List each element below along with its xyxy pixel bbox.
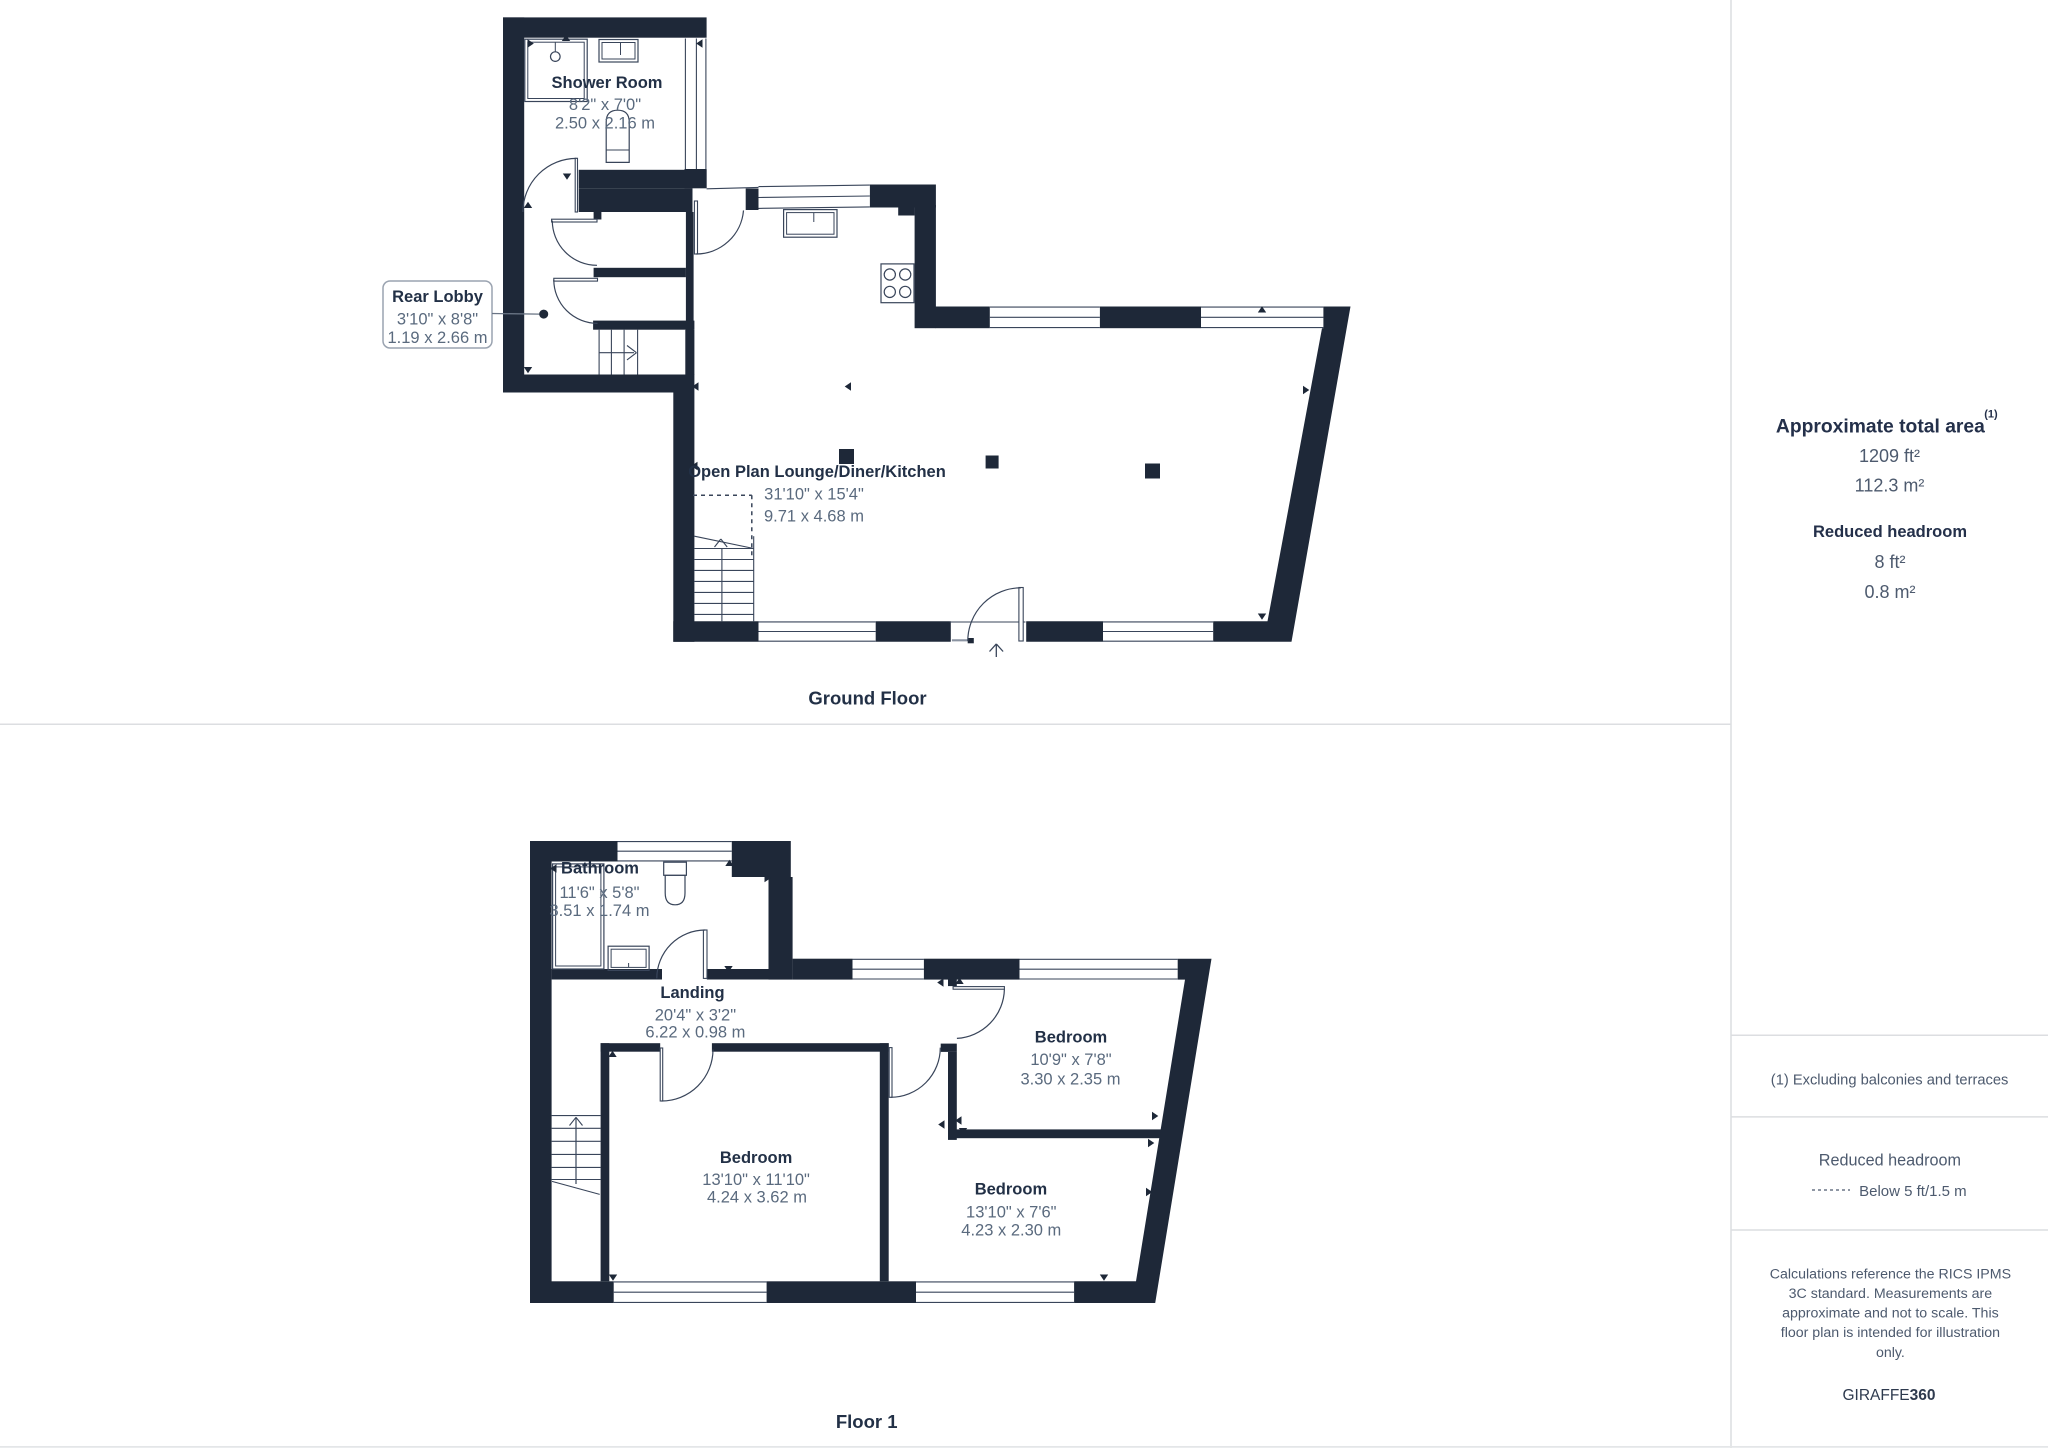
svg-text:GIRAFFE360: GIRAFFE360 [1842, 1387, 1935, 1404]
svg-text:Floor 1: Floor 1 [836, 1411, 898, 1432]
svg-text:Below 5 ft/1.5 m: Below 5 ft/1.5 m [1859, 1183, 1967, 1200]
svg-text:approximate and not to scale.: approximate and not to scale. This [1782, 1306, 1999, 1322]
svg-text:13'10" x 7'6": 13'10" x 7'6" [966, 1204, 1057, 1222]
svg-text:Bedroom: Bedroom [975, 1181, 1047, 1199]
svg-text:0.8 m²: 0.8 m² [1864, 582, 1915, 602]
svg-text:3'10" x 8'8": 3'10" x 8'8" [397, 311, 478, 329]
svg-text:9.71 x 4.68 m: 9.71 x 4.68 m [764, 508, 864, 526]
svg-text:Approximate total area: Approximate total area [1776, 416, 1985, 437]
svg-text:Bedroom: Bedroom [720, 1149, 792, 1167]
svg-text:Shower Room: Shower Room [552, 74, 663, 92]
svg-text:10'9" x 7'8": 10'9" x 7'8" [1030, 1051, 1111, 1069]
svg-text:Calculations reference the RIC: Calculations reference the RICS IPMS [1770, 1266, 2011, 1282]
svg-text:(1): (1) [1984, 409, 1998, 421]
svg-text:112.3 m²: 112.3 m² [1855, 476, 1925, 496]
svg-text:Rear Lobby: Rear Lobby [392, 288, 484, 306]
svg-text:Landing: Landing [660, 984, 724, 1002]
svg-text:20'4" x 3'2": 20'4" x 3'2" [655, 1007, 736, 1025]
svg-text:Ground Floor: Ground Floor [808, 688, 926, 709]
svg-text:31'10" x 15'4": 31'10" x 15'4" [764, 486, 864, 504]
svg-text:1.19 x 2.66 m: 1.19 x 2.66 m [388, 329, 488, 347]
svg-text:4.23 x 2.30 m: 4.23 x 2.30 m [961, 1222, 1061, 1240]
svg-text:13'10" x 11'10": 13'10" x 11'10" [702, 1171, 810, 1189]
svg-text:4.24 x 3.62 m: 4.24 x 3.62 m [707, 1189, 807, 1207]
svg-text:Open Plan Lounge/Diner/Kitchen: Open Plan Lounge/Diner/Kitchen [688, 463, 946, 481]
svg-text:Bedroom: Bedroom [1035, 1029, 1107, 1047]
svg-text:Bathroom: Bathroom [561, 860, 639, 878]
svg-text:8 ft²: 8 ft² [1874, 552, 1905, 572]
svg-text:floor plan is intended for ill: floor plan is intended for illustration [1781, 1325, 2000, 1341]
svg-text:3C standard. Measurements are: 3C standard. Measurements are [1789, 1286, 1993, 1302]
svg-text:2.50 x 2.16 m: 2.50 x 2.16 m [555, 115, 655, 133]
svg-text:Reduced headroom: Reduced headroom [1819, 1151, 1961, 1169]
svg-text:(1) Excluding balconies and te: (1) Excluding balconies and terraces [1771, 1073, 2009, 1089]
svg-text:1209 ft²: 1209 ft² [1859, 446, 1920, 466]
svg-text:Reduced headroom: Reduced headroom [1813, 523, 1967, 541]
svg-text:3.30 x 2.35 m: 3.30 x 2.35 m [1021, 1071, 1121, 1089]
svg-text:8'2" x 7'0": 8'2" x 7'0" [569, 96, 641, 114]
svg-text:6.22 x 0.98 m: 6.22 x 0.98 m [645, 1024, 745, 1042]
svg-text:3.51 x 1.74 m: 3.51 x 1.74 m [550, 902, 650, 920]
svg-text:only.: only. [1876, 1345, 1905, 1361]
svg-text:11'6" x 5'8": 11'6" x 5'8" [559, 884, 639, 902]
